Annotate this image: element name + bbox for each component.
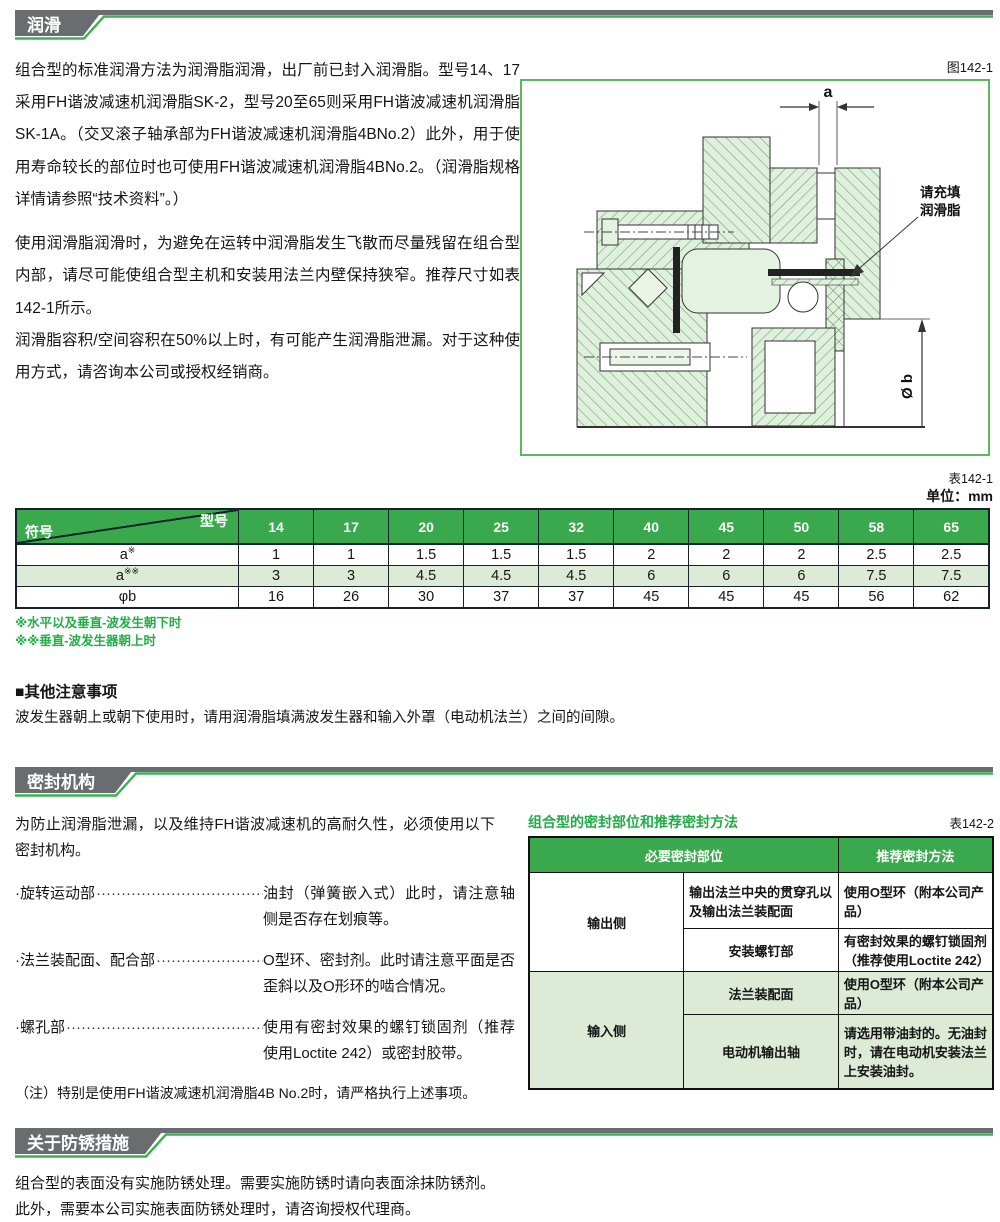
table1-footnotes: ※水平以及垂直-波发生朝下时 ※※垂直-波发生器朝上时 [15,614,993,650]
value-cell: 16 [239,587,314,609]
part-cell: 电动机输出轴 [684,1015,839,1089]
model-col-header: 58 [839,509,914,544]
table1-label: 表142-1 [15,472,993,488]
value-cell: 7.5 [839,566,914,587]
method-cell: 有密封效果的螺钉锁固剂（推荐使用Loctite 242） [838,929,993,972]
dotted-leader: ········································… [65,1015,263,1066]
value-cell: 45 [689,587,764,609]
section-title-sealing: 密封机构 [27,772,95,792]
dim-b-label: Ø b [899,374,916,399]
table-row: a※※ 3 3 4.5 4.5 4.5 6 6 6 7.5 7.5 [16,566,989,587]
value-cell: 3 [314,566,389,587]
figure-column: 图142-1 [520,55,993,456]
value-cell: 1 [239,544,314,566]
corner-label-symbol: 符号 [25,522,53,542]
value-cell: 2 [764,544,839,566]
value-cell: 1.5 [464,544,539,566]
method-cell: 请选用带油封的。无油封时，请在电动机安装法兰上安装油封。 [838,1015,993,1089]
value-cell: 1 [314,544,389,566]
dim-a-label: a [824,84,833,101]
grease-callout-line1: 请充填 [920,184,961,200]
corner-label-model: 型号 [200,511,228,531]
symbol-cell: a※※ [16,566,239,587]
part-cell: 输出法兰中央的贯穿孔以及输出法兰装配面 [684,873,839,929]
value-cell: 30 [389,587,464,609]
model-col-header: 45 [689,509,764,544]
sealing-table-column: 组合型的密封部位和推荐密封方法 表142-2 必要密封部位 推荐密封方法 输出侧… [528,812,994,1106]
value-cell: 26 [314,587,389,609]
list-item: ·法兰装配面、配合部 ·····························… [15,948,515,999]
value-cell: 6 [689,566,764,587]
seal-item-desc: 使用有密封效果的螺钉锁固剂（推荐使用Loctite 242）或密封胶带。 [263,1015,515,1066]
table2-header-row: 必要密封部位 推荐密封方法 [529,837,993,873]
value-cell: 56 [839,587,914,609]
dotted-leader: ········································… [95,881,263,932]
value-cell: 4.5 [464,566,539,587]
sealing-method-table: 必要密封部位 推荐密封方法 输出侧 输出法兰中央的贯穿孔以及输出法兰装配面 使用… [528,836,994,1090]
section-header-rust: 关于防锈措施 [15,1128,993,1159]
section-header-sealing: 密封机构 [15,767,993,798]
other-notes-title: ■其他注意事项 [15,680,993,702]
table2-title: 组合型的密封部位和推荐密封方法 [528,812,738,832]
model-col-header: 17 [314,509,389,544]
value-cell: 2.5 [839,544,914,566]
seal-item-term: ·螺孔部 [15,1015,65,1066]
figure-label: 图142-1 [520,57,993,76]
dimension-table: 型号 符号 14 17 20 25 32 40 45 50 58 65 a※ 1… [15,508,990,609]
value-cell: 62 [914,587,989,609]
table-row: 输出侧 输出法兰中央的贯穿孔以及输出法兰装配面 使用O型环（附本公司产品） [529,873,993,929]
sealing-intro: 为防止润滑脂泄漏，以及维持FH谐波减速机的高耐久性，必须使用以下密封机构。 [15,812,495,863]
dimension-a: a [780,84,874,165]
model-col-header: 32 [539,509,614,544]
value-cell: 4.5 [389,566,464,587]
seal-item-term: ·旋转运动部 [15,881,95,932]
table1-header-row: 型号 符号 14 17 20 25 32 40 45 50 58 65 [16,509,989,544]
table2-titlebar: 组合型的密封部位和推荐密封方法 表142-2 [528,812,994,832]
rust-paragraph-1: 组合型的表面没有实施防锈处理。需要实施防锈时请向表面涂抹防锈剂。 [15,1171,545,1197]
table2-label: 表142-2 [950,813,994,832]
other-notes: ■其他注意事项 波发生器朝上或朝下使用时，请用润滑脂填满波发生器和输入外罩（电动… [15,680,993,727]
model-col-header: 40 [614,509,689,544]
table1-labels: 表142-1 单位：mm [15,472,993,505]
model-col-header: 20 [389,509,464,544]
grease-callout-line2: 润滑脂 [920,202,961,218]
table1-corner-cell: 型号 符号 [16,509,239,544]
footnote: ※※垂直-波发生器朝上时 [15,632,993,650]
value-cell: 1.5 [539,544,614,566]
method-cell: 使用O型环（附本公司产品） [838,972,993,1015]
side-cell: 输出侧 [529,873,684,972]
ball-bearing-icon [788,282,818,312]
value-cell: 2 [614,544,689,566]
table2-col-header: 推荐密封方法 [838,837,993,873]
rust-section: 组合型的表面没有实施防锈处理。需要实施防锈时请向表面涂抹防锈剂。 此外，需要本公… [15,1171,993,1222]
side-cell: 输入侧 [529,972,684,1089]
value-cell: 3 [239,566,314,587]
value-cell: 2 [689,544,764,566]
list-item: ·旋转运动部 ·································… [15,881,515,932]
table2-col-header: 必要密封部位 [529,837,838,873]
value-cell: 37 [539,587,614,609]
cross-section-diagram: a Ø b 请充填 润滑脂 [520,79,990,456]
rust-paragraph-2: 此外，需要本公司实施表面防锈处理时，请咨询授权代理商。 [15,1197,993,1222]
section-title-rust: 关于防锈措施 [27,1133,129,1153]
sealing-section: 为防止润滑脂泄漏，以及维持FH谐波减速机的高耐久性，必须使用以下密封机构。 ·旋… [15,812,993,1106]
value-cell: 45 [764,587,839,609]
lubrication-section: 组合型的标准润滑方法为润滑脂润滑，出厂前已封入润滑脂。型号14、17采用FH谐波… [15,55,993,456]
part-cell: 法兰装配面 [684,972,839,1015]
value-cell: 1.5 [389,544,464,566]
table-row: a※ 1 1 1.5 1.5 1.5 2 2 2 2.5 2.5 [16,544,989,566]
lubrication-paragraph-3: 润滑脂容积/空间容积在50%以上时，有可能产生润滑脂泄漏。对于这种使用方式，请咨… [15,325,520,389]
lubrication-text: 组合型的标准润滑方法为润滑脂润滑，出厂前已封入润滑脂。型号14、17采用FH谐波… [15,55,520,456]
lubrication-paragraph-2: 使用润滑脂润滑时，为避免在运转中润滑脂发生飞散而尽量残留在组合型内部，请尽可能使… [15,228,520,325]
table-row: φb 16 26 30 37 37 45 45 45 56 62 [16,587,989,609]
sealing-text: 为防止润滑脂泄漏，以及维持FH谐波减速机的高耐久性，必须使用以下密封机构。 ·旋… [15,812,515,1106]
dimension-b: Ø b [899,319,926,427]
part-cell: 安装螺钉部 [684,929,839,972]
list-item: ·螺孔部 ···································… [15,1015,515,1066]
catalog-page: 润滑 组合型的标准润滑方法为润滑脂润滑，出厂前已封入润滑脂。型号14、17采用F… [0,0,1000,1222]
table1-unit: 单位：mm [15,488,993,506]
symbol-cell: φb [16,587,239,609]
lubrication-paragraph-1: 组合型的标准润滑方法为润滑脂润滑，出厂前已封入润滑脂。型号14、17采用FH谐波… [15,55,520,216]
method-cell: 使用O型环（附本公司产品） [838,873,993,929]
seal-item-desc: O型环、密封剂。此时请注意平面是否歪斜以及O形环的啮合情况。 [263,948,515,999]
value-cell: 7.5 [914,566,989,587]
model-col-header: 14 [239,509,314,544]
value-cell: 6 [614,566,689,587]
seal-item-term: ·法兰装配面、配合部 [15,948,155,999]
value-cell: 2.5 [914,544,989,566]
value-cell: 6 [764,566,839,587]
value-cell: 4.5 [539,566,614,587]
symbol-cell: a※ [16,544,239,566]
footnote: ※水平以及垂直-波发生朝下时 [15,614,993,632]
value-cell: 37 [464,587,539,609]
model-col-header: 50 [764,509,839,544]
model-col-header: 25 [464,509,539,544]
other-notes-body: 波发生器朝上或朝下使用时，请用润滑脂填满波发生器和输入外罩（电动机法兰）之间的间… [15,706,993,727]
value-cell: 45 [614,587,689,609]
table-row: 输入侧 法兰装配面 使用O型环（附本公司产品） [529,972,993,1015]
cross-section-drawing: a Ø b 请充填 润滑脂 [522,81,988,454]
sealing-note: （注）特别是使用FH谐波减速机润滑脂4B No.2时，请严格执行上述事项。 [15,1082,515,1106]
section-title-lubrication: 润滑 [27,15,61,35]
seal-item-desc: 油封（弹簧嵌入式）此时，请注意轴侧是否存在划痕等。 [263,881,515,932]
dotted-leader: ········································… [155,948,263,999]
section-header-lubrication: 润滑 [15,10,993,41]
model-col-header: 65 [914,509,989,544]
